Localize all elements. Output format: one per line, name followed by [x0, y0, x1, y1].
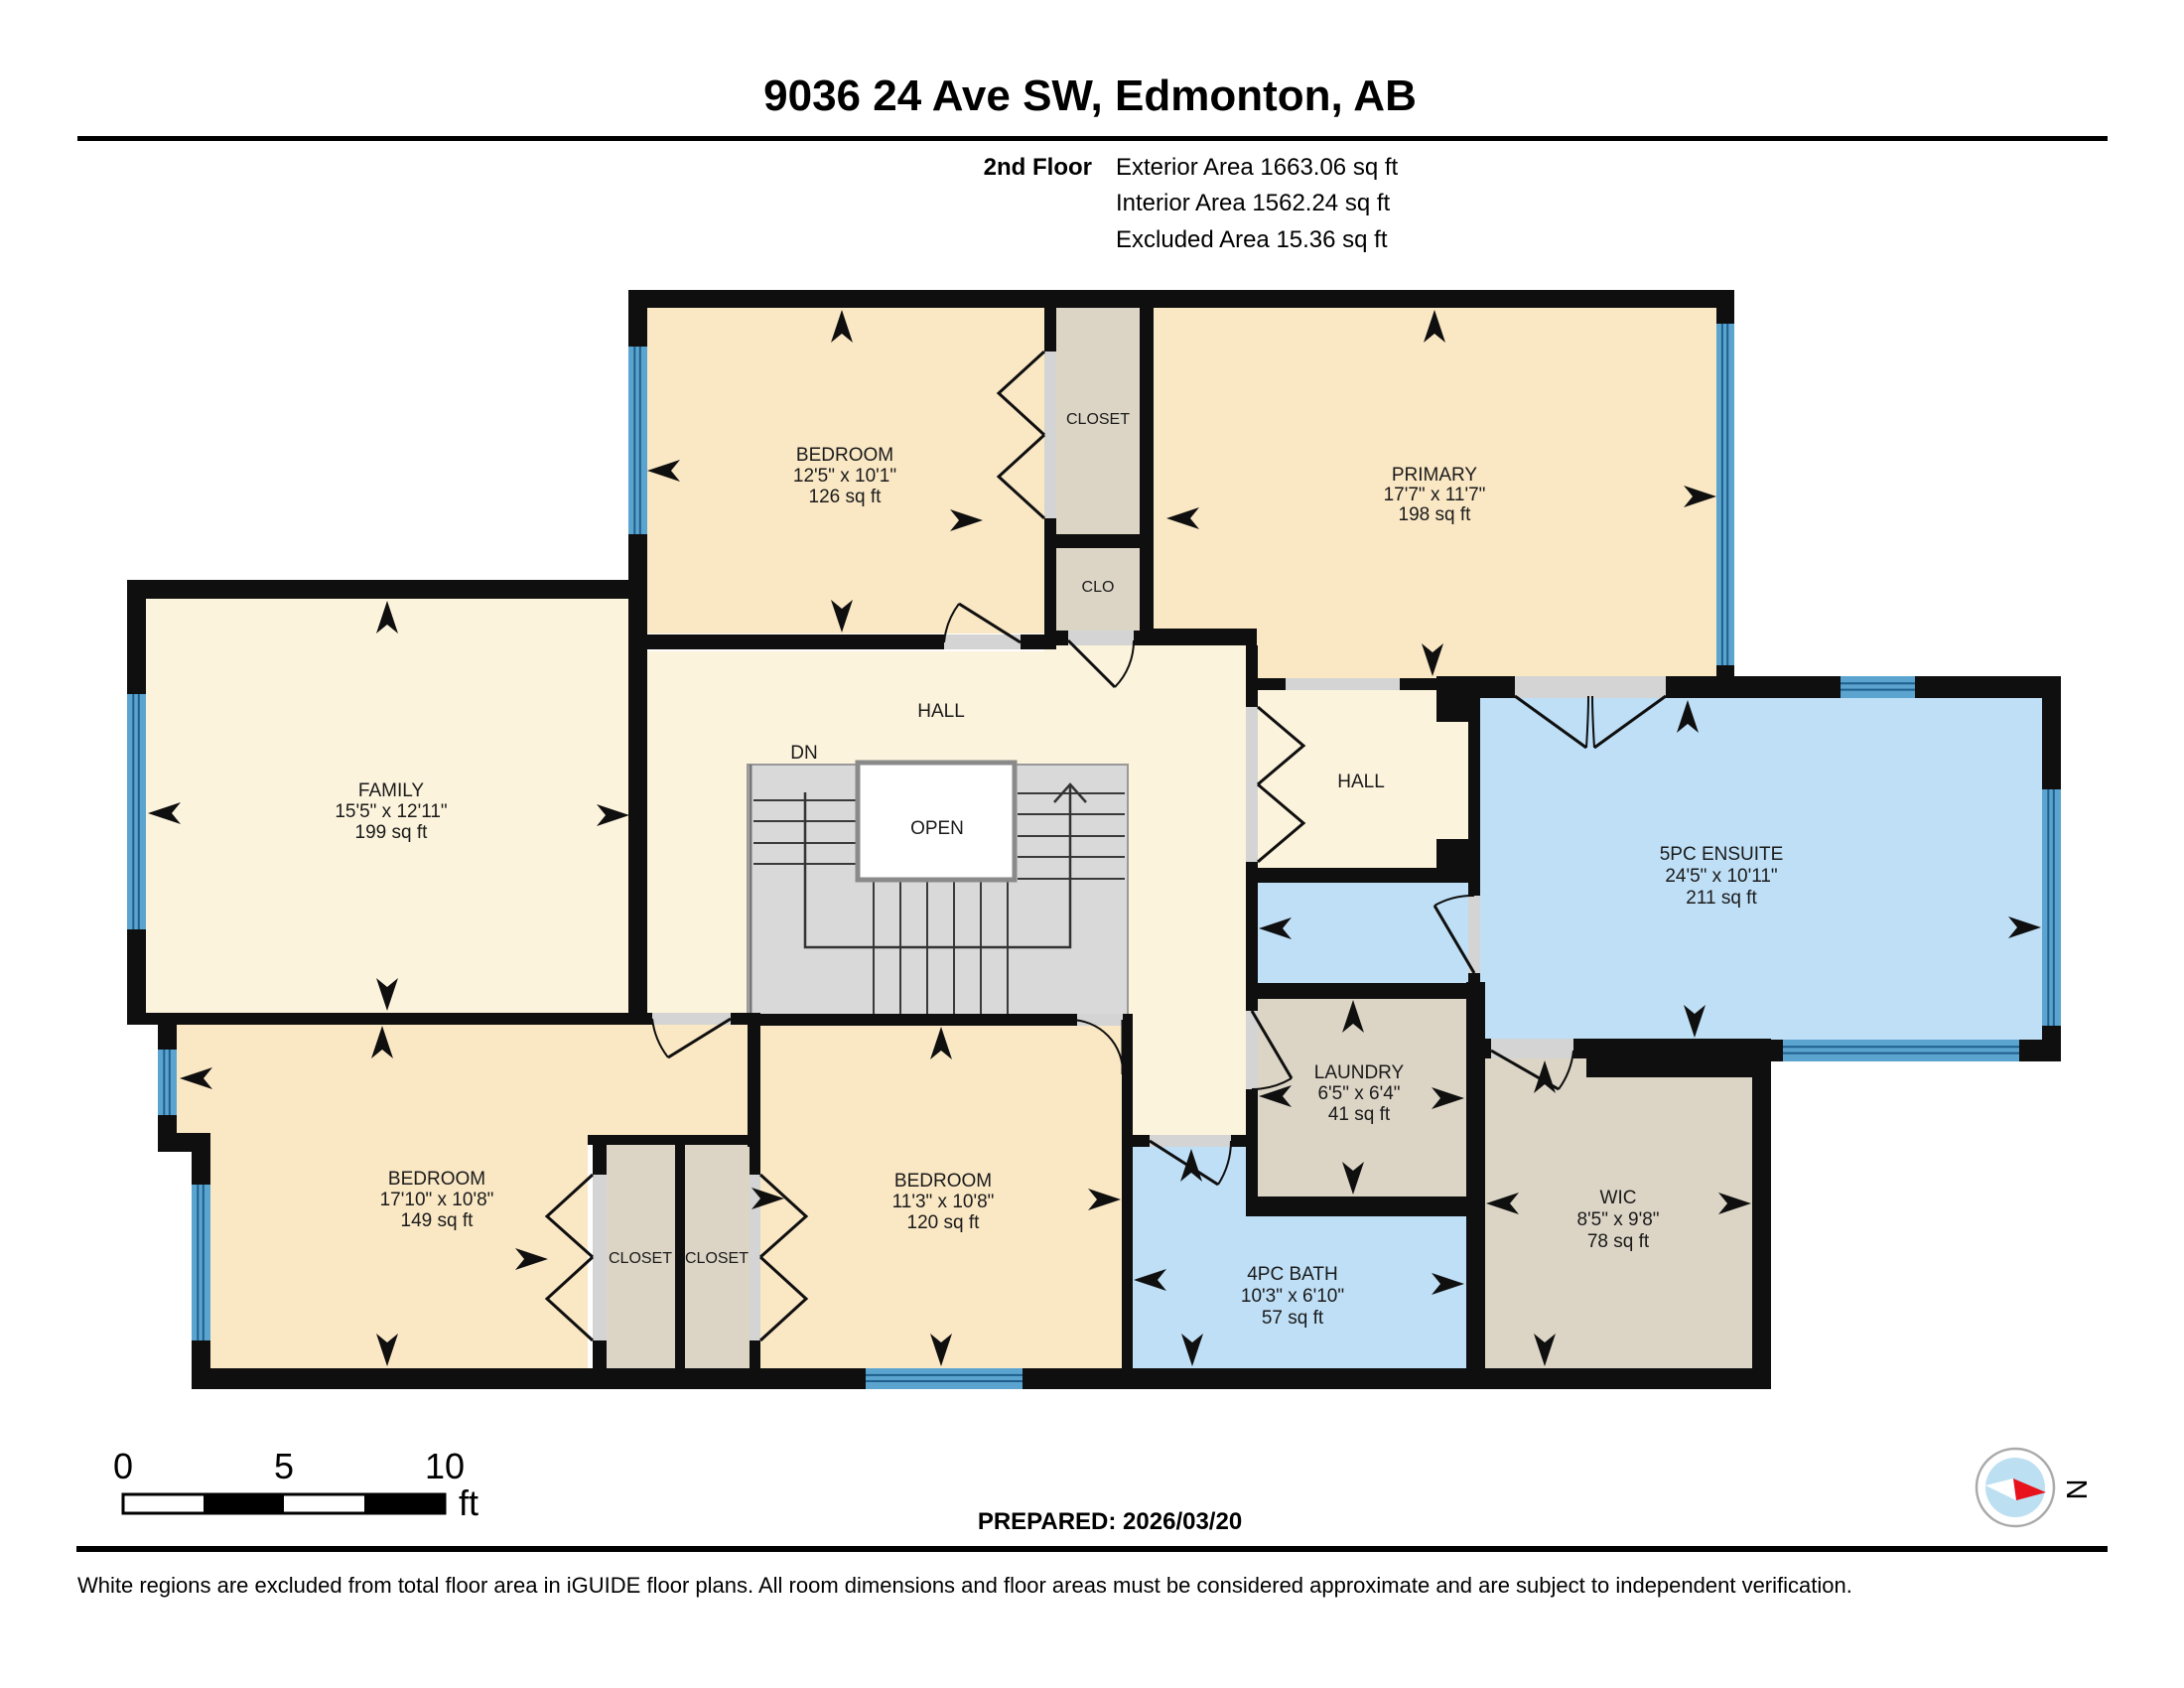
svg-text:N: N — [2060, 1479, 2092, 1500]
svg-text:Exterior Area 1663.06 sq ft: Exterior Area 1663.06 sq ft — [1116, 154, 1399, 181]
svg-text:WIC: WIC — [1600, 1188, 1637, 1208]
svg-text:0: 0 — [113, 1446, 133, 1486]
svg-text:OPEN: OPEN — [910, 818, 964, 839]
svg-text:57 sq ft: 57 sq ft — [1262, 1308, 1324, 1329]
svg-text:CLOSET: CLOSET — [1066, 411, 1130, 428]
svg-text:9036 24 Ave SW, Edmonton, AB: 9036 24 Ave SW, Edmonton, AB — [763, 71, 1417, 120]
svg-text:211 sq ft: 211 sq ft — [1686, 888, 1757, 909]
svg-text:10'3" x 6'10": 10'3" x 6'10" — [1241, 1286, 1344, 1307]
svg-text:5: 5 — [274, 1446, 294, 1486]
svg-text:DN: DN — [790, 743, 817, 764]
svg-text:5PC ENSUITE: 5PC ENSUITE — [1660, 844, 1784, 865]
svg-text:CLOSET: CLOSET — [609, 1250, 672, 1267]
svg-text:17'7" x 11'7": 17'7" x 11'7" — [1384, 485, 1486, 505]
svg-text:PREPARED: 2026/03/20: PREPARED: 2026/03/20 — [978, 1508, 1242, 1535]
svg-text:10: 10 — [425, 1446, 465, 1486]
svg-text:PRIMARY: PRIMARY — [1392, 465, 1478, 486]
svg-text:4PC BATH: 4PC BATH — [1247, 1264, 1338, 1285]
svg-text:CLOSET: CLOSET — [685, 1250, 749, 1267]
svg-text:BEDROOM: BEDROOM — [796, 445, 893, 466]
svg-text:FAMILY: FAMILY — [358, 780, 424, 801]
svg-text:198 sq ft: 198 sq ft — [1399, 504, 1472, 525]
svg-text:17'10" x 10'8": 17'10" x 10'8" — [380, 1190, 494, 1210]
svg-text:12'5" x 10'1": 12'5" x 10'1" — [793, 466, 896, 487]
svg-text:24'5" x 10'11": 24'5" x 10'11" — [1665, 866, 1777, 887]
svg-text:HALL: HALL — [1337, 772, 1385, 792]
svg-text:8'5" x 9'8": 8'5" x 9'8" — [1576, 1209, 1659, 1230]
svg-text:Excluded Area 15.36 sq ft: Excluded Area 15.36 sq ft — [1116, 226, 1388, 253]
svg-text:41 sq ft: 41 sq ft — [1328, 1104, 1391, 1125]
svg-text:11'3" x 10'8": 11'3" x 10'8" — [892, 1192, 995, 1212]
svg-text:120 sq ft: 120 sq ft — [907, 1212, 981, 1233]
svg-text:ft: ft — [459, 1482, 478, 1523]
svg-text:HALL: HALL — [917, 701, 965, 722]
svg-text:2nd Floor: 2nd Floor — [984, 154, 1092, 181]
svg-text:LAUNDRY: LAUNDRY — [1314, 1062, 1405, 1083]
svg-text:15'5" x 12'11": 15'5" x 12'11" — [335, 801, 447, 822]
svg-text:6'5" x 6'4": 6'5" x 6'4" — [1317, 1083, 1400, 1104]
svg-text:CLO: CLO — [1082, 579, 1115, 596]
svg-text:BEDROOM: BEDROOM — [388, 1169, 485, 1190]
svg-text:78 sq ft: 78 sq ft — [1587, 1231, 1650, 1252]
svg-text:126 sq ft: 126 sq ft — [809, 487, 883, 507]
svg-text:White regions are excluded fro: White regions are excluded from total fl… — [77, 1573, 1852, 1598]
svg-text:BEDROOM: BEDROOM — [894, 1171, 992, 1192]
svg-text:199 sq ft: 199 sq ft — [355, 822, 429, 843]
svg-text:Interior Area 1562.24 sq ft: Interior Area 1562.24 sq ft — [1116, 190, 1391, 216]
svg-text:149 sq ft: 149 sq ft — [401, 1210, 475, 1231]
